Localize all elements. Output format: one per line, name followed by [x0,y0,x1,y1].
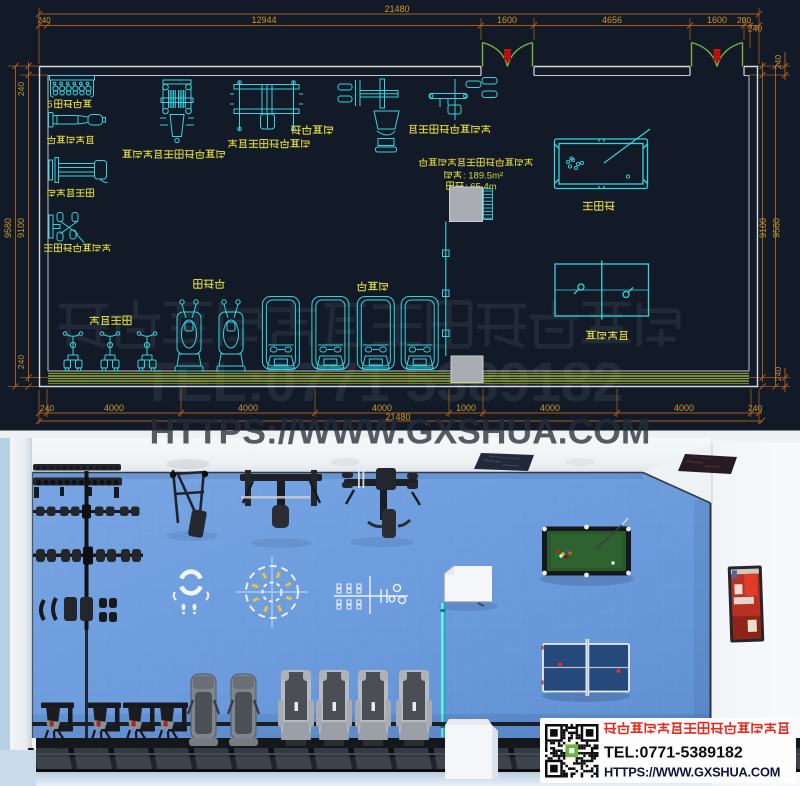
svg-text:240: 240 [748,403,762,413]
svg-text:12944: 12944 [251,15,276,25]
svg-text:1600: 1600 [497,15,517,25]
svg-text:9100: 9100 [758,218,768,238]
svg-text:21480: 21480 [384,4,409,14]
svg-text:4000: 4000 [104,403,124,413]
svg-text:4656: 4656 [602,15,622,25]
svg-text:4000: 4000 [674,403,694,413]
svg-text:9580: 9580 [772,218,782,238]
svg-text:9100: 9100 [16,218,26,238]
svg-text:9580: 9580 [3,218,13,238]
svg-text:240: 240 [773,367,783,381]
svg-text:6: 6 [47,100,53,111]
svg-text:HTTPS://WWW.GXSHUA.COM: HTTPS://WWW.GXSHUA.COM [604,765,780,780]
svg-text:TEL:0771-5389182: TEL:0771-5389182 [604,745,743,762]
svg-text:1600: 1600 [707,15,727,25]
svg-text:240: 240 [16,355,26,369]
svg-text:240: 240 [773,55,783,69]
svg-text:: 189.5m²: : 189.5m² [463,171,503,182]
svg-text:240: 240 [37,16,51,25]
svg-text:240: 240 [16,82,26,96]
